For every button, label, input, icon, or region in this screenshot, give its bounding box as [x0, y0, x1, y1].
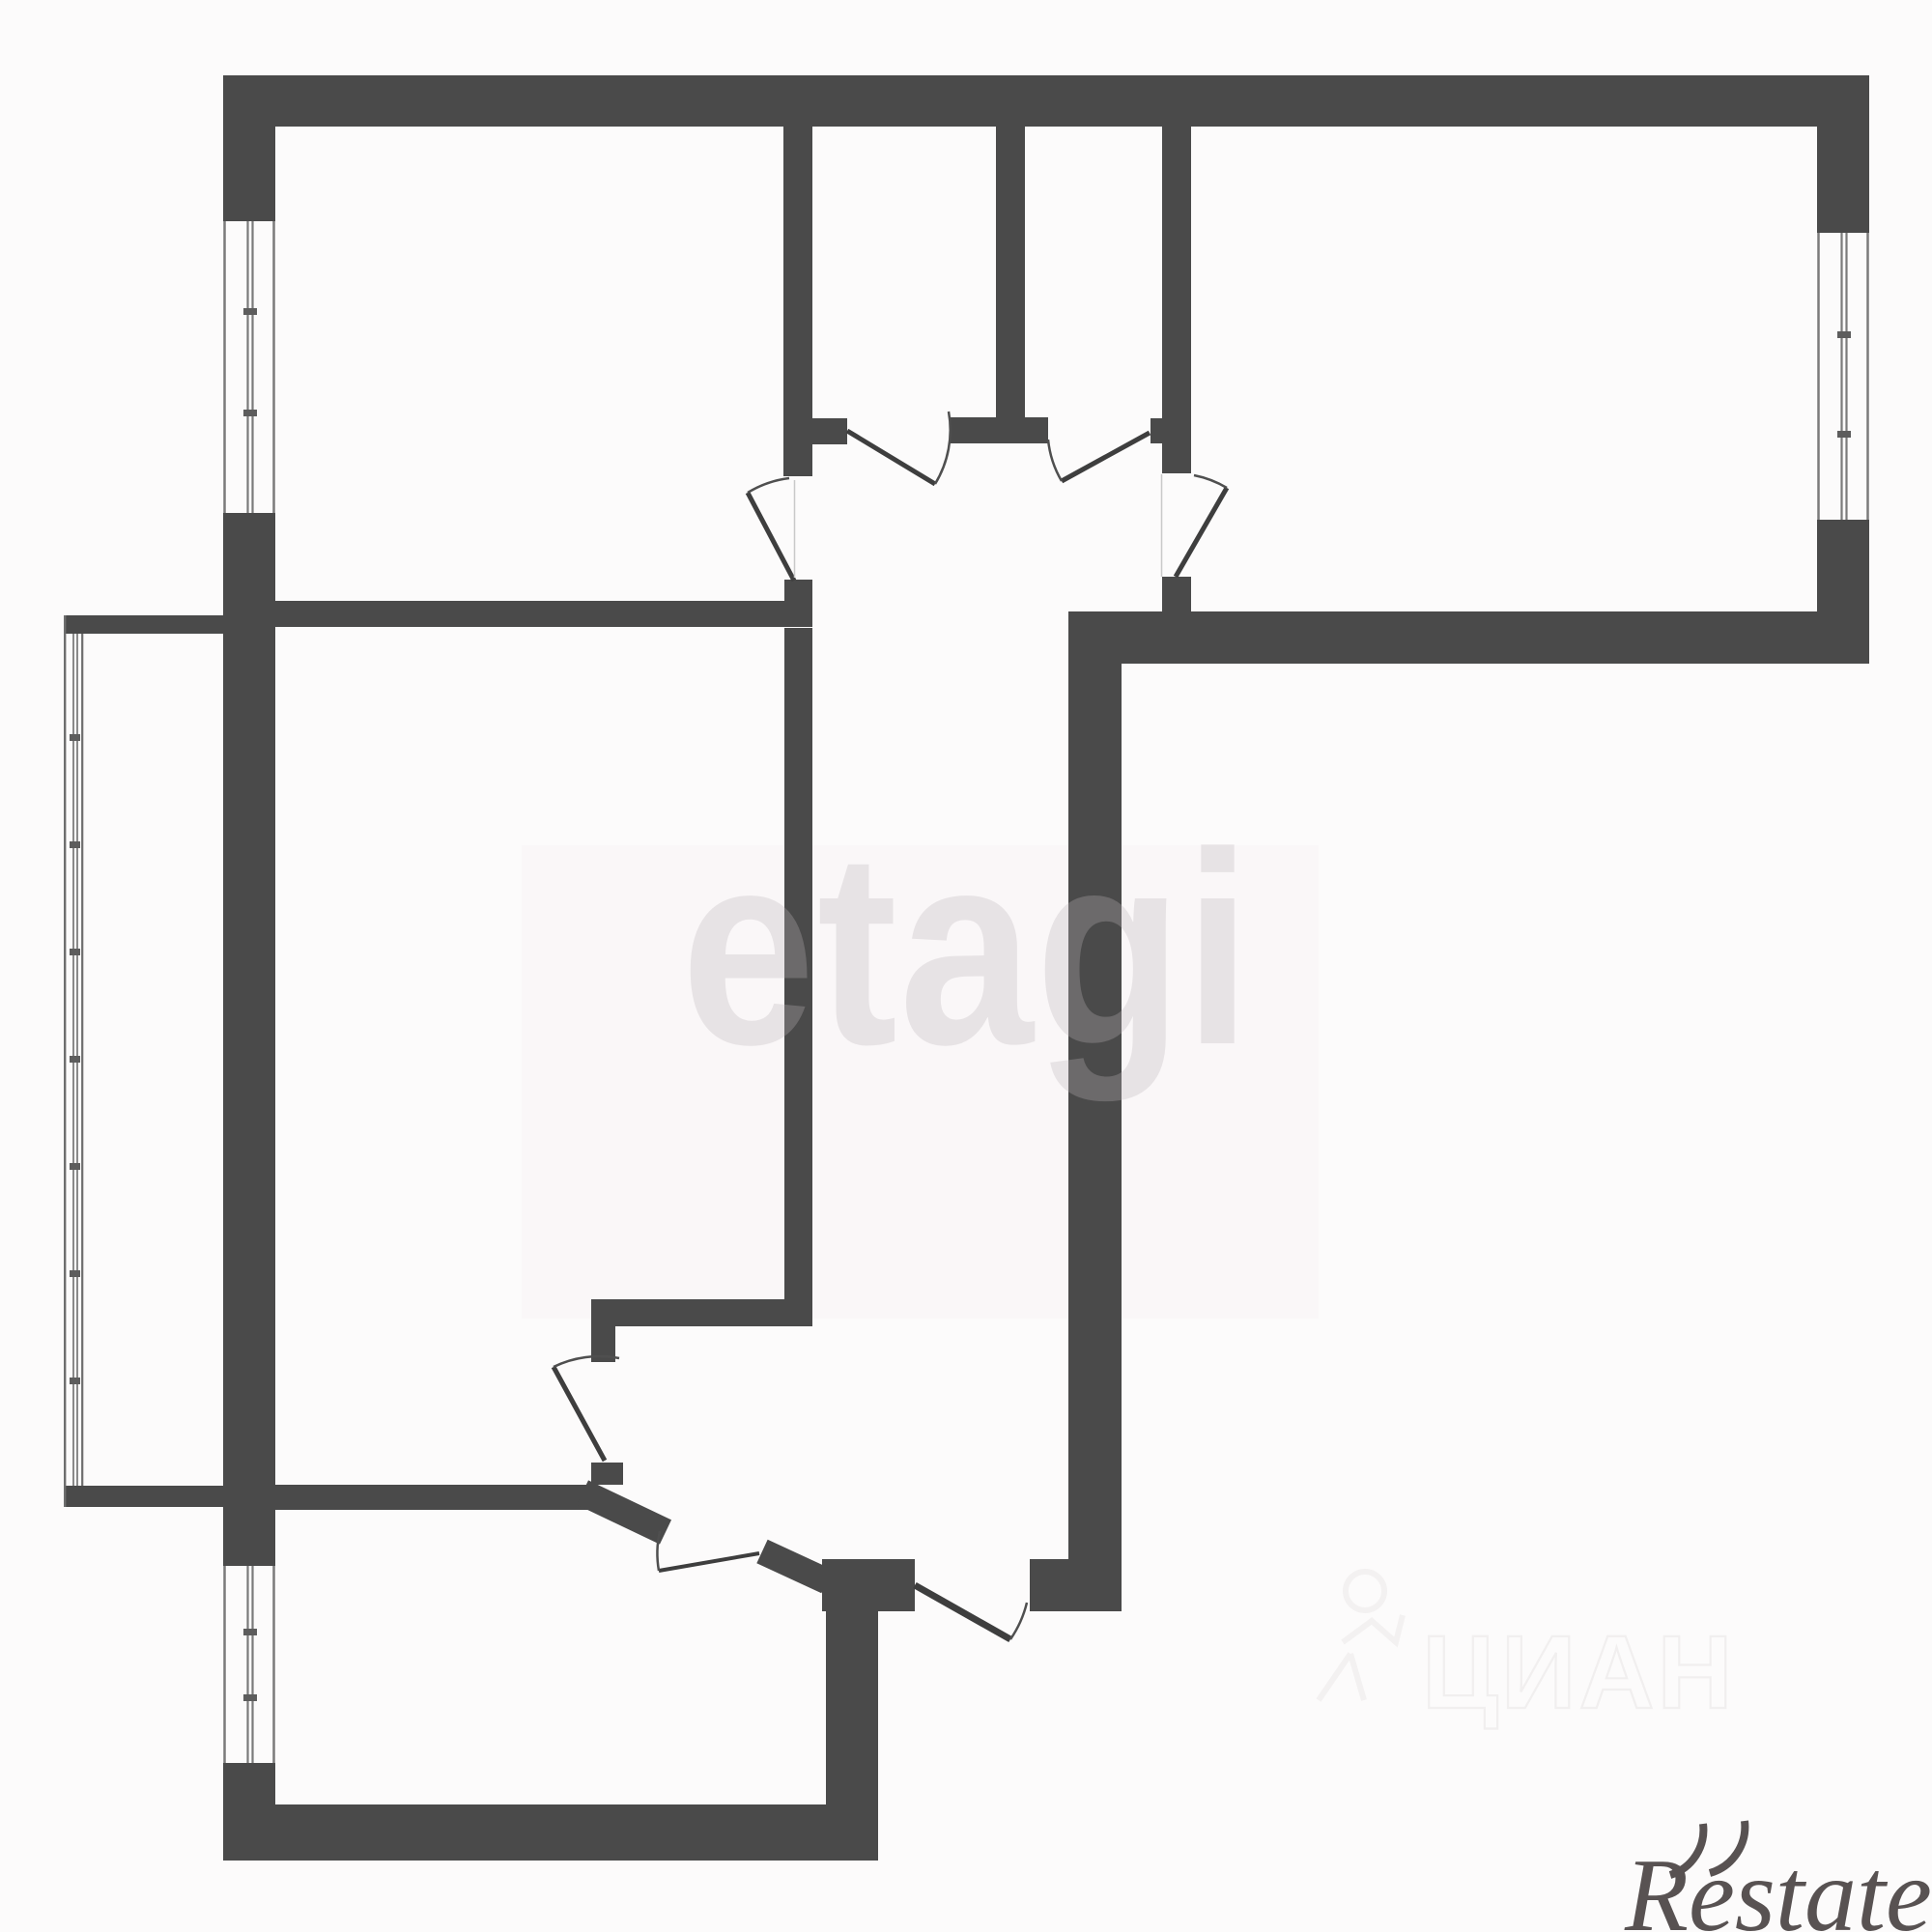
svg-text:Restate: Restate	[1624, 1838, 1932, 1932]
svg-text:etagi: etagi	[681, 795, 1253, 1103]
svg-text:ЦИАН: ЦИАН	[1422, 1613, 1736, 1730]
